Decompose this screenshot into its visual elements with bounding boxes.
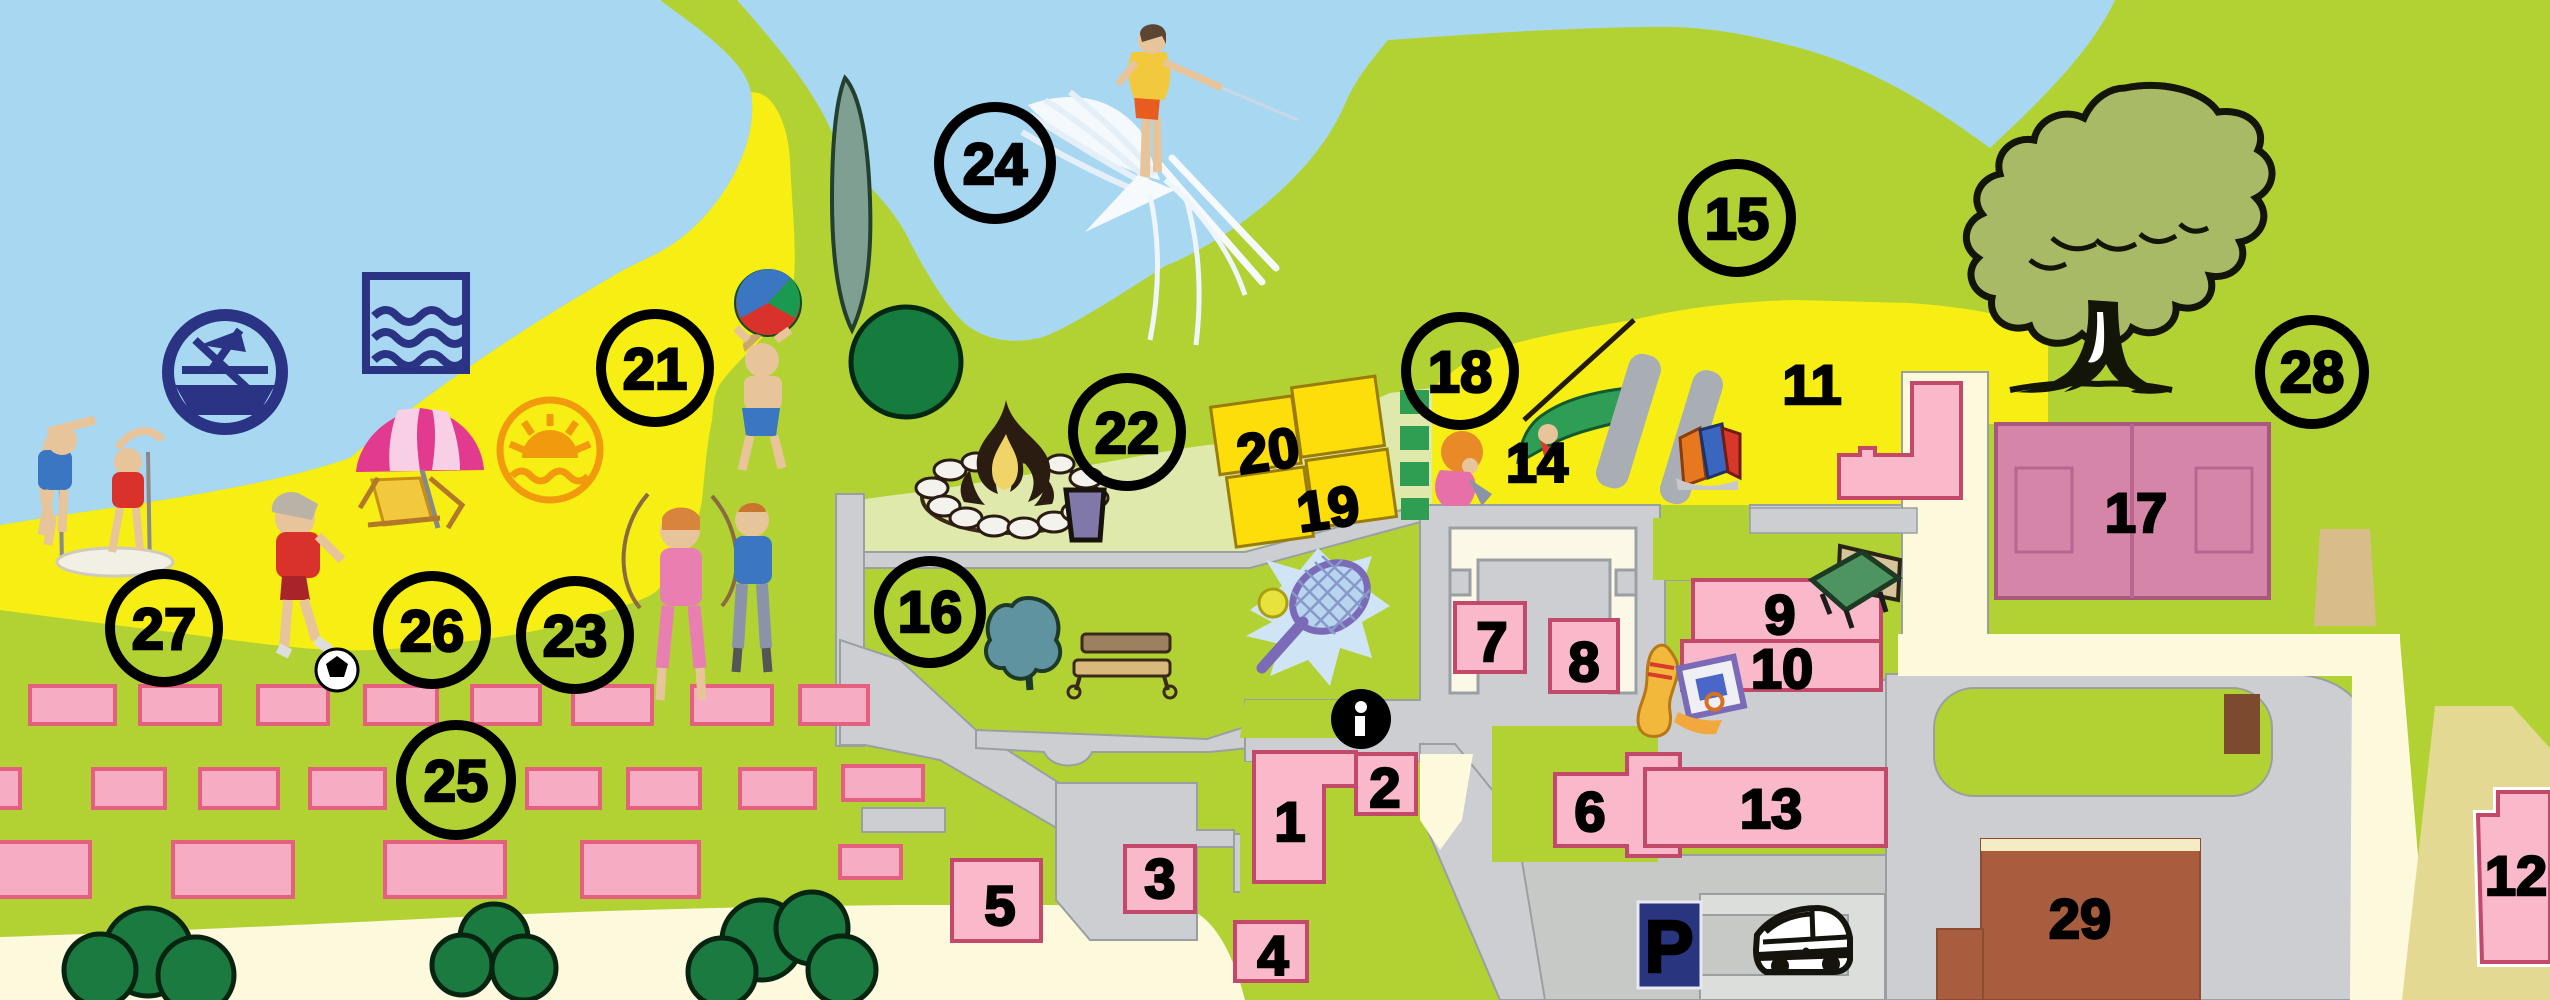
svg-text:22: 22 — [1095, 401, 1160, 466]
svg-text:28: 28 — [2280, 340, 2345, 405]
svg-text:19: 19 — [1293, 473, 1363, 544]
svg-text:26: 26 — [400, 599, 465, 664]
svg-text:14: 14 — [1506, 431, 1568, 494]
svg-text:21: 21 — [623, 337, 688, 402]
svg-text:23: 23 — [543, 604, 608, 669]
svg-text:20: 20 — [1233, 415, 1303, 486]
svg-text:11: 11 — [1782, 353, 1841, 416]
svg-text:18: 18 — [1428, 340, 1493, 405]
svg-text:5: 5 — [984, 874, 1015, 937]
svg-text:1: 1 — [1274, 790, 1305, 853]
svg-text:2: 2 — [1369, 756, 1400, 819]
svg-text:27: 27 — [132, 597, 197, 662]
svg-text:8: 8 — [1568, 630, 1599, 693]
svg-text:4: 4 — [1257, 924, 1288, 987]
svg-text:25: 25 — [424, 749, 489, 814]
svg-text:7: 7 — [1476, 610, 1507, 673]
svg-text:13: 13 — [1740, 777, 1802, 840]
svg-text:29: 29 — [2049, 887, 2111, 950]
svg-text:24: 24 — [963, 132, 1028, 197]
svg-text:3: 3 — [1144, 847, 1175, 910]
svg-text:17: 17 — [2105, 481, 2167, 544]
svg-text:10: 10 — [1751, 637, 1813, 700]
svg-text:12: 12 — [2485, 844, 2547, 907]
svg-text:P: P — [1644, 905, 1693, 988]
svg-text:15: 15 — [1705, 187, 1770, 252]
svg-text:16: 16 — [898, 580, 963, 645]
svg-text:6: 6 — [1574, 780, 1605, 843]
